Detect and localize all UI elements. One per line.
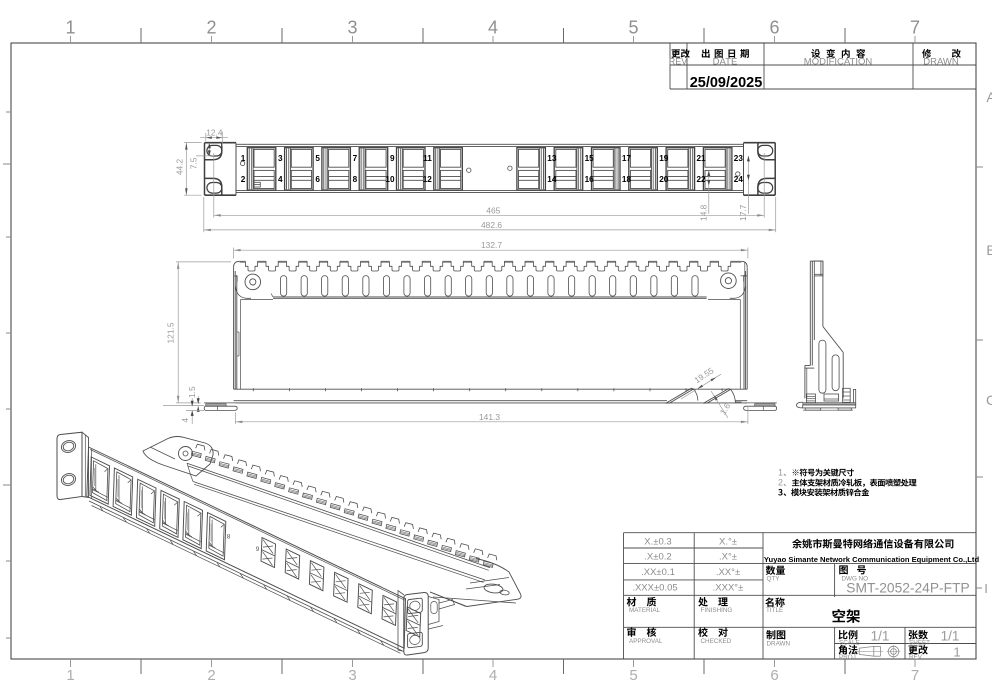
svg-text:22: 22: [697, 175, 707, 184]
svg-text:.X±0.2: .X±0.2: [644, 552, 671, 563]
svg-text:25/09/2025: 25/09/2025: [690, 75, 763, 91]
svg-text:482.6: 482.6: [481, 220, 502, 230]
svg-text:2: 2: [206, 18, 216, 38]
svg-text:C: C: [986, 392, 992, 408]
svg-text:10: 10: [385, 175, 395, 184]
svg-text:A: A: [986, 89, 992, 105]
svg-text:17.7: 17.7: [738, 204, 748, 221]
svg-text:9: 9: [390, 154, 395, 163]
svg-text:B: B: [986, 242, 992, 258]
svg-text:23: 23: [734, 154, 744, 163]
svg-text:1: 1: [65, 18, 75, 38]
svg-text:MATERIAL: MATERIAL: [629, 607, 661, 614]
svg-text:APPROVAL: APPROVAL: [629, 638, 663, 645]
svg-text:SHEET: SHEET: [909, 640, 930, 647]
svg-text:8: 8: [353, 175, 358, 184]
svg-text:PROJ: PROJ: [839, 654, 856, 661]
svg-text:.XXX±0.05: .XXX±0.05: [632, 583, 677, 594]
svg-text:18: 18: [622, 175, 632, 184]
svg-text:20: 20: [659, 175, 669, 184]
svg-text:6: 6: [770, 667, 778, 684]
svg-text:8: 8: [227, 534, 231, 541]
svg-text:12.4: 12.4: [206, 128, 223, 138]
svg-text:141.3: 141.3: [479, 412, 500, 422]
svg-text:9: 9: [256, 546, 260, 553]
svg-text:1/1: 1/1: [941, 629, 960, 644]
svg-text:X.°±: X.°±: [719, 537, 737, 548]
svg-text:13: 13: [547, 154, 557, 163]
svg-text:5: 5: [628, 18, 638, 38]
svg-text:5: 5: [315, 154, 320, 163]
svg-text:.XXX°±: .XXX°±: [713, 583, 744, 594]
svg-text:121.5: 121.5: [166, 322, 176, 343]
svg-text:1: 1: [953, 645, 960, 660]
svg-text:14.8: 14.8: [698, 204, 708, 221]
svg-text:2: 2: [241, 175, 246, 184]
svg-text:MODIFICATION: MODIFICATION: [804, 57, 873, 68]
svg-text:FINISHING: FINISHING: [701, 607, 733, 614]
svg-text:2: 2: [778, 478, 783, 488]
svg-text:.XX±0.1: .XX±0.1: [641, 567, 675, 578]
svg-text:4: 4: [278, 175, 283, 184]
svg-text:1.5: 1.5: [187, 386, 197, 398]
svg-text:1: 1: [66, 667, 74, 684]
svg-text:CHECKED: CHECKED: [701, 638, 732, 645]
svg-text:Yuyao Simante Network Communic: Yuyao Simante Network Communication Equi…: [764, 555, 980, 564]
svg-text:1: 1: [778, 468, 783, 478]
svg-text:REV: REV: [909, 654, 923, 661]
svg-text:X.±0.3: X.±0.3: [644, 537, 671, 548]
svg-text:14: 14: [547, 175, 557, 184]
svg-text:7: 7: [910, 18, 920, 38]
svg-text:DRAWN: DRAWN: [923, 57, 959, 68]
svg-text:19: 19: [659, 154, 669, 163]
svg-text:TITLE: TITLE: [766, 607, 783, 614]
svg-text:6: 6: [315, 175, 320, 184]
svg-text:REV: REV: [669, 57, 688, 67]
svg-text:4: 4: [488, 18, 498, 38]
svg-text:7: 7: [911, 667, 919, 684]
svg-text:17: 17: [622, 154, 632, 163]
svg-text:132.7: 132.7: [481, 240, 502, 250]
svg-text:DRAWN: DRAWN: [767, 641, 791, 648]
svg-text:.X°±: .X°±: [719, 552, 737, 563]
svg-text:DATE: DATE: [713, 57, 738, 68]
svg-text:6: 6: [769, 18, 779, 38]
svg-text:I: I: [984, 581, 988, 596]
svg-text:1/1: 1/1: [871, 629, 890, 644]
svg-text:SMT-2052-24P-FTP: SMT-2052-24P-FTP: [846, 581, 969, 596]
svg-text:2: 2: [207, 667, 215, 684]
svg-text:4: 4: [180, 418, 190, 423]
svg-text:4: 4: [489, 667, 497, 684]
svg-text:16: 16: [585, 175, 595, 184]
svg-text:3: 3: [347, 18, 357, 38]
svg-text:3: 3: [348, 667, 356, 684]
svg-text:3: 3: [278, 154, 283, 163]
svg-text:465: 465: [486, 205, 500, 215]
svg-text:QTY: QTY: [767, 576, 781, 583]
svg-text:21: 21: [697, 154, 707, 163]
svg-text:.XX°±: .XX°±: [716, 567, 740, 578]
svg-text:7: 7: [353, 154, 358, 163]
svg-text:11: 11: [423, 154, 432, 163]
svg-text:15: 15: [585, 154, 595, 163]
svg-text:44.2: 44.2: [174, 159, 184, 176]
svg-text:12: 12: [423, 175, 433, 184]
svg-text:5: 5: [629, 667, 637, 684]
svg-text:7.5: 7.5: [189, 157, 199, 169]
